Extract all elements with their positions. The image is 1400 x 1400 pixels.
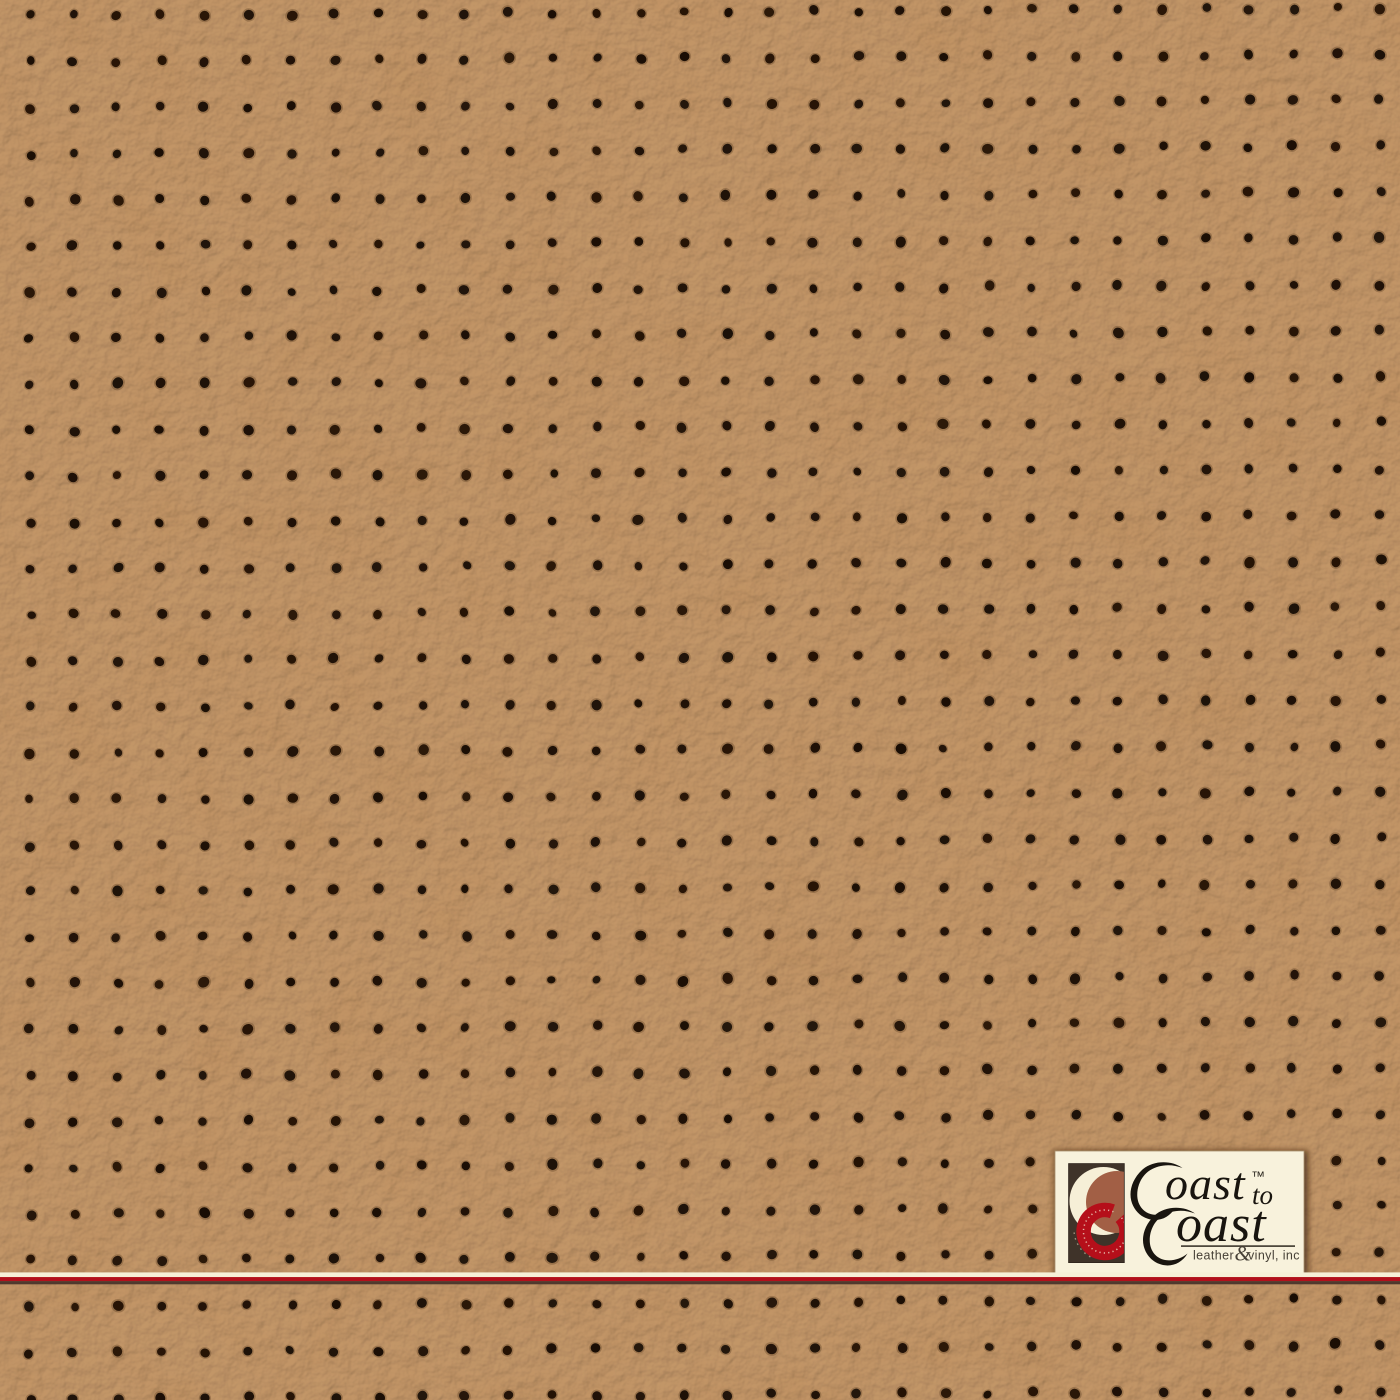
svg-text:leather: leather [1193, 1249, 1234, 1263]
svg-text:oast: oast [1176, 1196, 1267, 1253]
svg-text:vinyl, inc: vinyl, inc [1248, 1249, 1300, 1263]
